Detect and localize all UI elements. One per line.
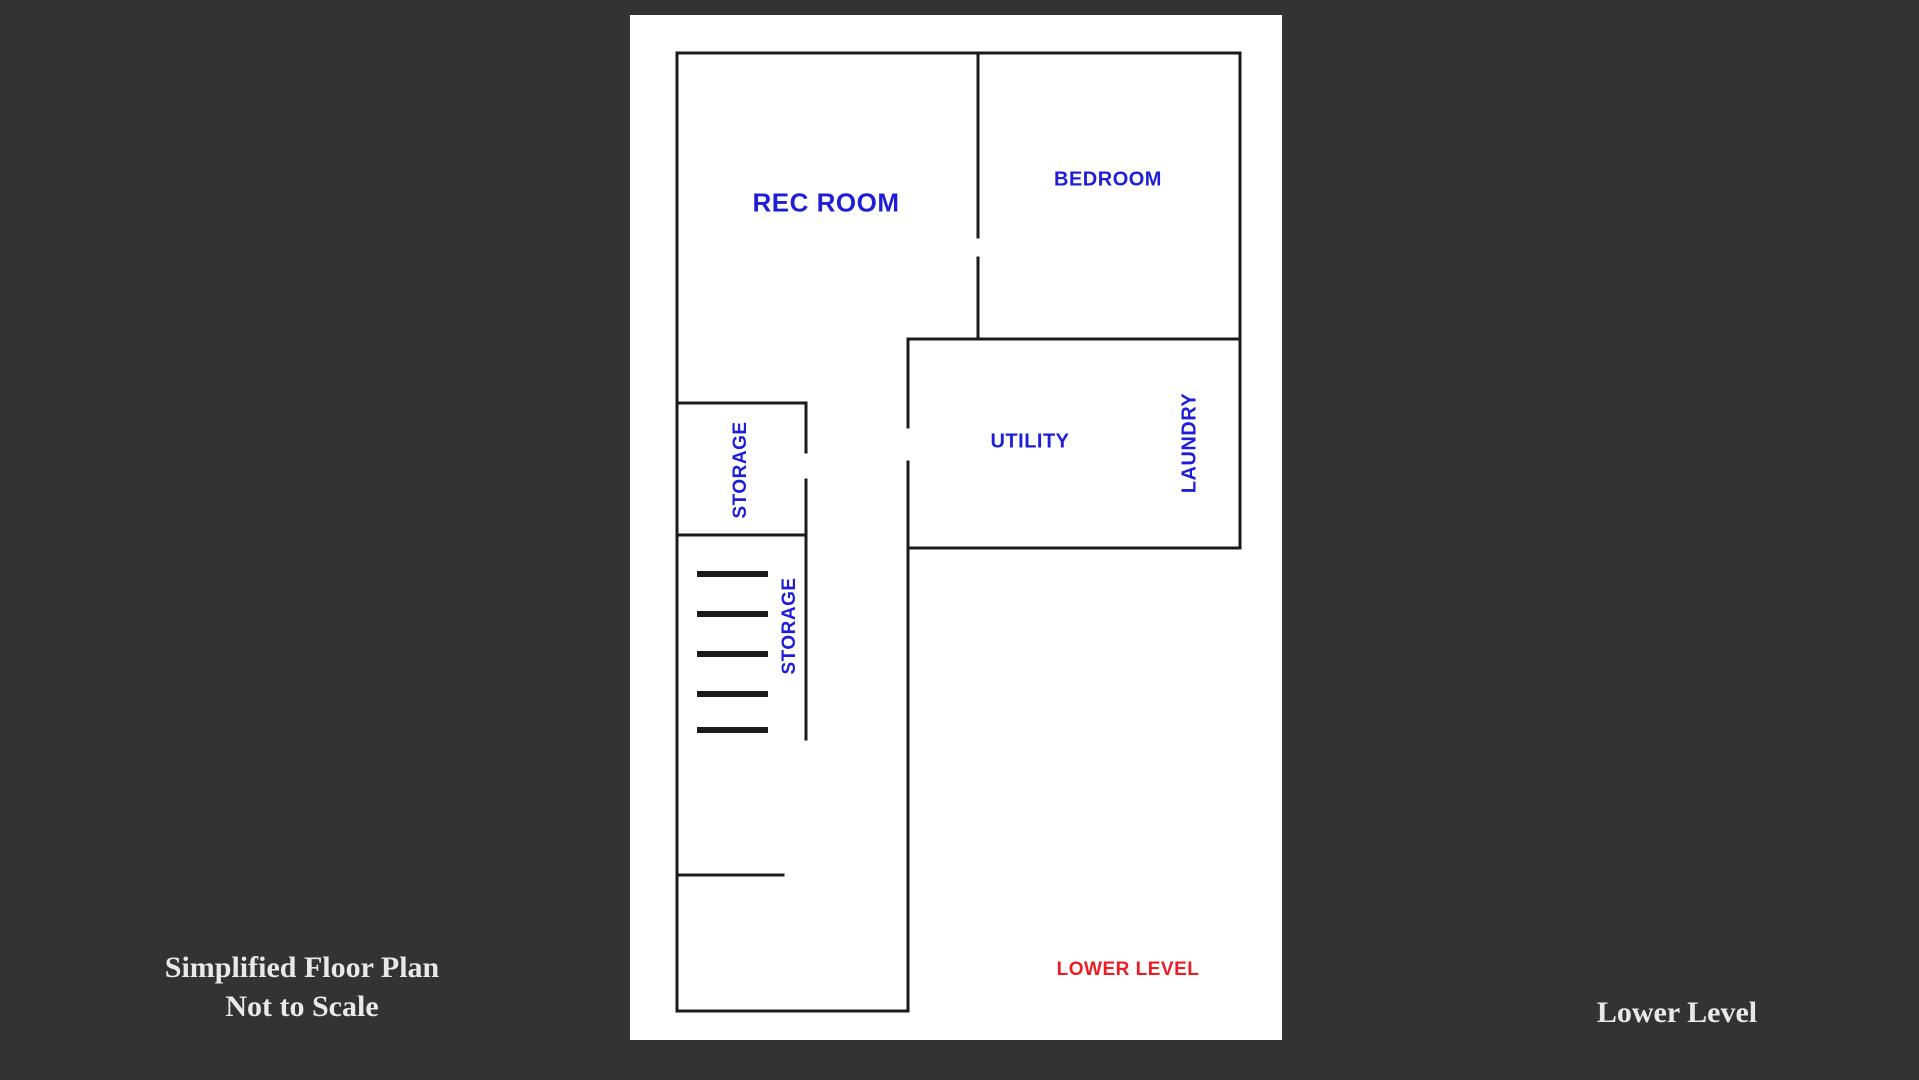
floor-plan-panel: REC ROOM BEDROOM STORAGE UTILITY LAUNDRY… bbox=[630, 15, 1282, 1040]
caption-left: Simplified Floor Plan Not to Scale bbox=[82, 948, 522, 1026]
stairs bbox=[697, 574, 768, 730]
room-label-utility: UTILITY bbox=[990, 431, 1069, 454]
caption-left-line1: Simplified Floor Plan bbox=[82, 948, 522, 987]
room-label-rec-room: REC ROOM bbox=[753, 188, 900, 219]
floor-plan-drawing bbox=[630, 15, 1282, 1040]
room-label-bedroom: BEDROOM bbox=[1054, 169, 1162, 192]
room-label-laundry: LAUNDRY bbox=[1179, 393, 1202, 494]
slide-background: { "page": { "background_color": "#333333… bbox=[0, 0, 1919, 1080]
room-label-storage-lower: STORAGE bbox=[779, 577, 801, 674]
room-label-storage-upper: STORAGE bbox=[730, 421, 752, 518]
level-label: LOWER LEVEL bbox=[1057, 959, 1200, 981]
caption-right: Lower Level bbox=[1527, 994, 1827, 1032]
caption-left-line2: Not to Scale bbox=[82, 987, 522, 1026]
